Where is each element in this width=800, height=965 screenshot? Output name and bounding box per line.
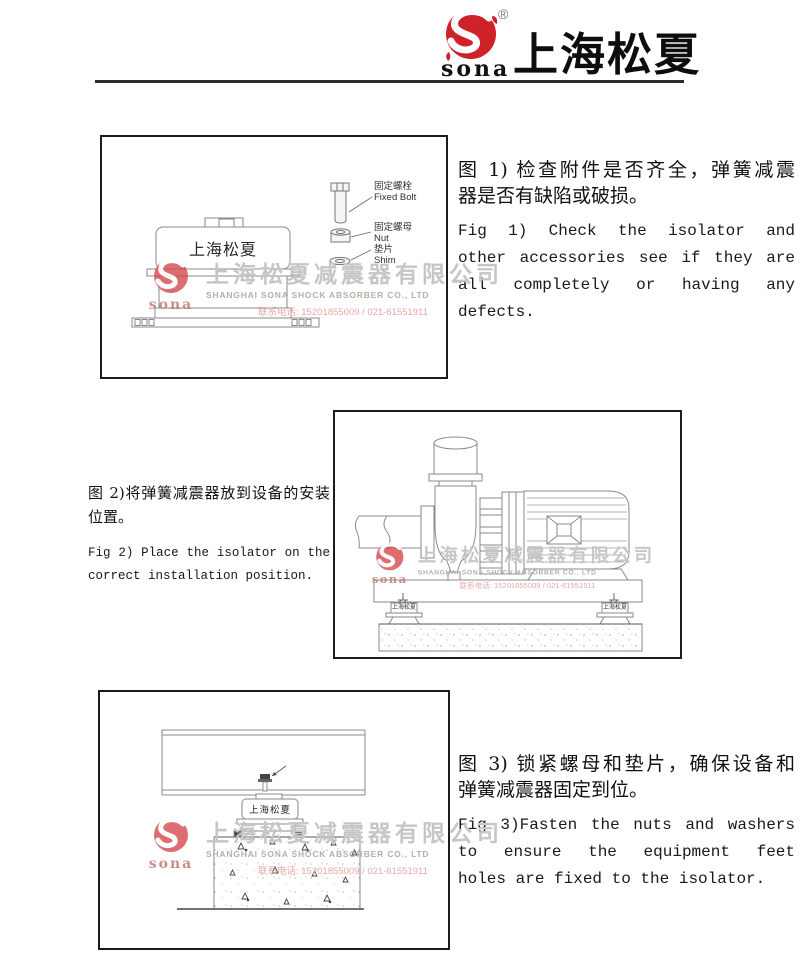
figure2-caption: 图 2)将弹簧减震器放到设备的安装 位置。 Fig 2) Place the i… — [88, 481, 330, 588]
registered-mark: ® — [498, 6, 508, 22]
figure1-caption: 图 1) 检查附件是否齐全，弹簧减震 器是否有缺陷或破损。 Fig 1) Che… — [458, 157, 795, 326]
header-divider — [95, 80, 684, 83]
figure1-drawing-panel: sona 上海松夏减震器有限公司 SHANGHAI SONA SHOCK ABS… — [100, 135, 448, 379]
callout-shim-en: Shim — [374, 255, 396, 266]
figure3-drawing-panel: sona 上海松夏减震器有限公司 SHANGHAI SONA SHOCK ABS… — [98, 690, 450, 950]
caption-cn-line: 器是否有缺陷或破损。 — [458, 183, 795, 209]
callout-nut-en: Nut — [374, 233, 412, 244]
caption-en-line: defects. — [458, 299, 795, 326]
caption-en-line: Fig 2) Place the isolator on the — [88, 542, 330, 565]
callout-nut-cn: 固定螺母 — [374, 222, 412, 233]
small-isolator-label: 上海松夏 — [391, 604, 417, 613]
isolator-brand-label: 上海松夏 — [244, 802, 296, 816]
caption-en-line: holes are fixed to the isolator. — [458, 866, 795, 893]
callout-fixed-bolt-cn: 固定螺栓 — [374, 181, 416, 192]
caption-en-line: Fig 1) Check the isolator and — [458, 218, 795, 245]
callout-shim-cn: 垫片 — [374, 244, 396, 255]
callout-fixed-bolt-en: Fixed Bolt — [374, 192, 416, 203]
caption-cn-line: 图 3) 锁紧螺母和垫片，确保设备和 — [458, 751, 795, 777]
brand-title: 上海松夏 — [513, 18, 701, 83]
figure2-drawing-panel: sona 上海松夏减震器有限公司 SHANGHAI SONA SHOCK ABS… — [333, 410, 682, 659]
logo-wordmark: sona — [441, 56, 510, 82]
figure3-caption: 图 3) 锁紧螺母和垫片，确保设备和 弹簧减震器固定到位。 Fig 3)Fast… — [458, 751, 795, 893]
caption-cn-line: 图 2)将弹簧减震器放到设备的安装 — [88, 481, 330, 505]
caption-cn-line: 弹簧减震器固定到位。 — [458, 777, 795, 803]
caption-en-line: other accessories see if they are — [458, 245, 795, 272]
caption-en-line: correct installation position. — [88, 565, 330, 588]
caption-cn-line: 位置。 — [88, 505, 330, 529]
caption-en-line: to ensure the equipment feet — [458, 839, 795, 866]
small-isolator-label: 上海松夏 — [602, 604, 628, 613]
callout-nut: 固定螺母 Nut — [374, 222, 412, 244]
figure3-line-art — [100, 692, 448, 948]
caption-en-line: Fig 3)Fasten the nuts and washers — [458, 812, 795, 839]
figure2-line-art — [335, 412, 680, 657]
caption-en-line: all completely or having any — [458, 272, 795, 299]
isolator-brand-label: 上海松夏 — [166, 236, 280, 260]
callout-fixed-bolt: 固定螺栓 Fixed Bolt — [374, 181, 416, 203]
caption-cn-line: 图 1) 检查附件是否齐全，弹簧减震 — [458, 157, 795, 183]
callout-shim: 垫片 Shim — [374, 244, 396, 266]
